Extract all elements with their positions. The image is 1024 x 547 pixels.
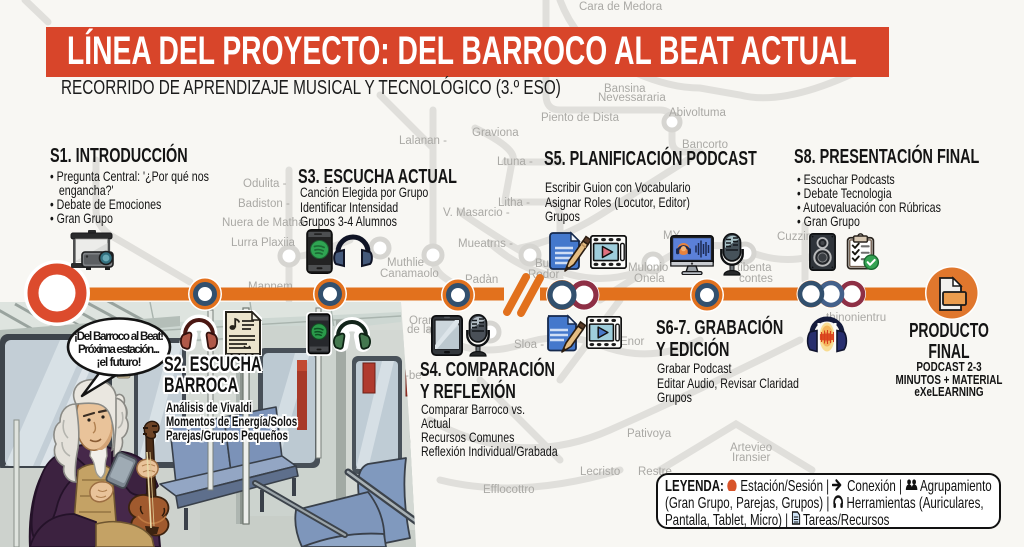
svg-text:Nuera de Matha: Nuera de Matha	[222, 217, 305, 229]
svg-text:Lecristo: Lecristo	[580, 466, 620, 478]
svg-text:Lalanan -: Lalanan -	[399, 135, 447, 147]
svg-text:Iransier: Iransier	[732, 452, 771, 464]
svg-text:Abivoltuma: Abivoltuma	[669, 107, 726, 119]
svg-text:Ltuna -: Ltuna -	[497, 156, 533, 168]
svg-text:Badiston -: Badiston -	[238, 198, 290, 210]
svg-text:Odulita -: Odulita -	[243, 178, 287, 190]
svg-text:Pativoya: Pativoya	[627, 428, 672, 440]
svg-text:Graviona: Graviona	[472, 127, 519, 139]
svg-text:Nevessararia: Nevessararia	[598, 92, 666, 104]
svg-text:Piento de Dista: Piento de Dista	[541, 112, 620, 124]
svg-text:V. Masarcio -: V. Masarcio -	[443, 207, 510, 219]
svg-text:Cara de Medora: Cara de Medora	[579, 1, 663, 13]
svg-text:Efflocottro: Efflocottro	[483, 484, 535, 496]
